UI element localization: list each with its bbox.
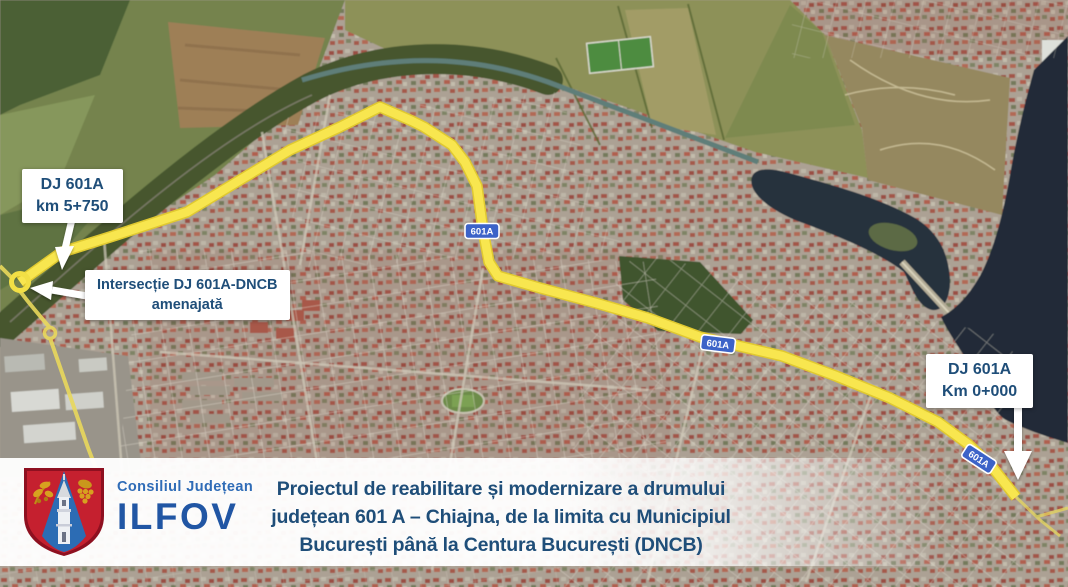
ilfov-coat-of-arms-icon	[22, 466, 106, 558]
infographic-poster: 601A 601A 601A DJ 601A	[0, 0, 1068, 587]
label-intersection-dncb: Intersecție DJ 601A-DNCB amenajată	[85, 270, 290, 320]
footer-band: Consiliul Județean ILFOV Proiectul de re…	[0, 458, 952, 566]
county-name: ILFOV	[117, 496, 253, 538]
council-name: Consiliul Județean	[117, 479, 253, 495]
svg-text:601A: 601A	[471, 226, 494, 237]
label-km-5750: DJ 601A km 5+750	[22, 169, 123, 223]
road-badge-601a-north: 601A	[465, 224, 499, 239]
label-km-0000: DJ 601A Km 0+000	[926, 354, 1033, 408]
road-badge-601a-middle: 601A	[700, 334, 736, 353]
project-title: Proiectul de reabilitare și modernizare …	[258, 475, 744, 559]
ilfov-county-logo: Consiliul Județean ILFOV	[22, 466, 253, 558]
